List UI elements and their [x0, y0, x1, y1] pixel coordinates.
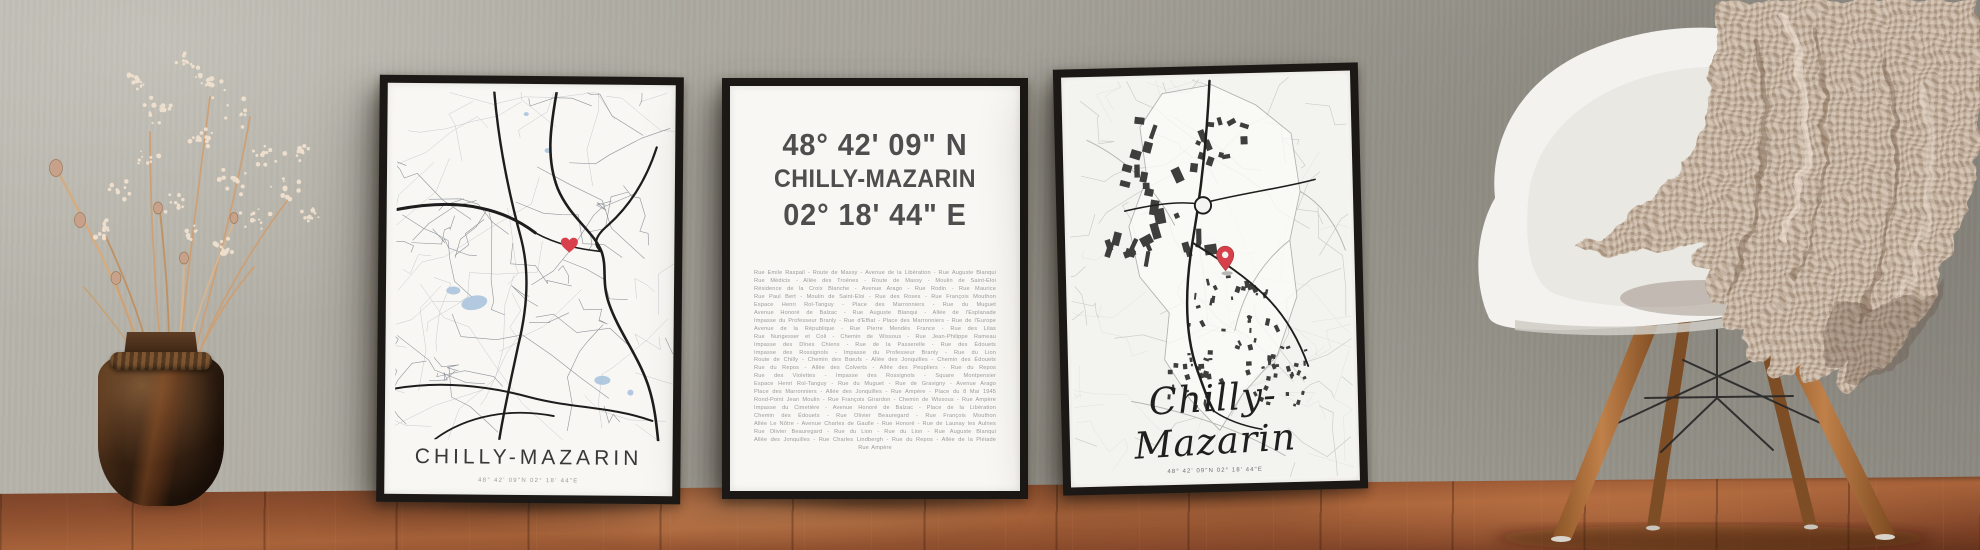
- street-line: Rue des Violettes - Impasse des Rossigno…: [754, 373, 996, 381]
- street-line: Route de Chilly - Chemin des Bœufs - All…: [754, 357, 996, 365]
- poppy-pods: [50, 160, 239, 285]
- room-scene: CHILLY-MAZARIN 48° 42' 09"N 02° 18' 44"E…: [0, 0, 1980, 550]
- street-map: [395, 91, 676, 441]
- street-line: Impasse du Cimetière - Avenue Honoré de …: [754, 405, 996, 413]
- street-line: Avenue Honoré de Balzac - Rue Auguste Bl…: [754, 310, 996, 318]
- street-line: Rue Emile Raspail - Route de Massy - Ave…: [754, 270, 996, 278]
- vase-rope: [110, 352, 212, 370]
- street-line: Espace Henri Rol-Tanguy - Rue du Muguet …: [754, 381, 996, 389]
- framed-poster-street-map: CHILLY-MAZARIN 48° 42' 09"N 02° 18' 44"E: [376, 75, 684, 505]
- street-line: Résidence de la Croix Blanche - Avenue A…: [754, 286, 996, 294]
- longitude-text: 02° 18' 44" E: [740, 196, 1010, 233]
- framed-poster-coordinates: 48° 42' 09" N CHILLY-MAZARIN 02° 18' 44"…: [722, 78, 1028, 499]
- street-line: Espace Henri Rol-Tanguy - Place des Marr…: [754, 302, 996, 310]
- poster-title: CHILLY-MAZARIN: [384, 445, 672, 472]
- street-line: Allée Le Nôtre - Avenue Charles de Gaull…: [754, 421, 996, 429]
- street-line: Allée des Jonquilles - Rue Charles Lindb…: [754, 437, 996, 445]
- babys-breath: [93, 51, 320, 256]
- street-line: Impasse du Professeur Branly - Rue d'Eff…: [754, 318, 996, 326]
- poster-coordinates: 48° 42' 09"N 02° 18' 44"E: [384, 477, 672, 486]
- heart-icon: [561, 238, 578, 253]
- street-line: Place des Marronniers - Allée des Jonqui…: [754, 389, 996, 397]
- street-line: Rue Nungesser et Coli - Chemin de Wissou…: [754, 334, 996, 342]
- street-name-list: Rue Emile Raspail - Route de Massy - Ave…: [730, 270, 1020, 453]
- street-line: Avenue de la République - Rue Pierre Men…: [754, 326, 996, 334]
- vase: [98, 352, 224, 506]
- latitude-text: 48° 42' 09" N: [740, 126, 1010, 163]
- street-line: Rue Paul Bert - Moulin de Saint-Eloi - R…: [754, 294, 996, 302]
- street-line: Rue Ampère: [754, 445, 996, 453]
- city-map: Chilly-Mazarin 48° 42' 09"N 02° 18' 44"E: [1066, 76, 1355, 483]
- street-line: Chemin des Édouets - Rue Olivier Beaureg…: [754, 413, 996, 421]
- armchair-with-blanket: [1455, 0, 1980, 550]
- framed-poster-city-map: Chilly-Mazarin 48° 42' 09"N 02° 18' 44"E: [1053, 62, 1368, 495]
- street-line: Rond-Point Jean Moulin - Rue François Gi…: [754, 397, 996, 405]
- poster-title-script: Chilly-Mazarin: [1072, 369, 1356, 471]
- street-line: Rue Médicis - Allée des Troènes - Route …: [754, 278, 996, 286]
- city-name: CHILLY-MAZARIN: [740, 163, 1010, 196]
- street-line: Rue Olivier Beauregard - Rue du Lion - R…: [754, 429, 996, 437]
- street-line: Rue du Repos - Allée des Colverts - Allé…: [754, 365, 996, 373]
- street-line: Impasse des Dînes Chiens - Rue de la Pas…: [754, 342, 996, 350]
- main-roads: [395, 91, 662, 441]
